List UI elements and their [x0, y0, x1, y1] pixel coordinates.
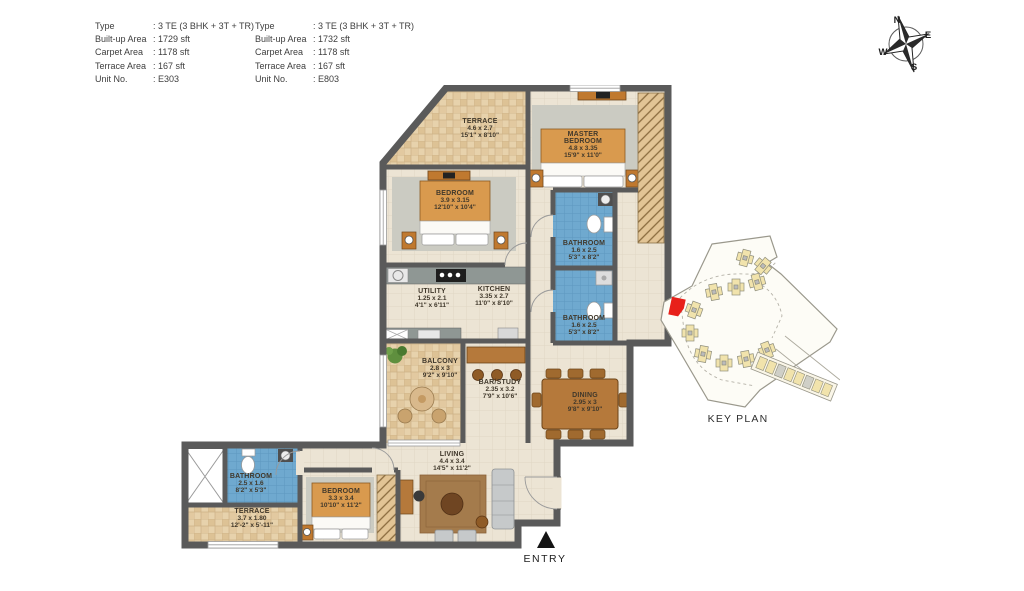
bed — [420, 181, 490, 221]
terrace-top-floor — [383, 88, 528, 165]
bedroom-upper-furniture — [392, 171, 516, 251]
compass-east-label: E — [921, 30, 935, 41]
entry-arrow-icon — [537, 531, 555, 548]
spec-row: Terrace Area: 167 sft — [255, 60, 414, 73]
unit-spec-block-1: Type: 3 TE (3 BHK + 3T + TR) Built-up Ar… — [95, 20, 254, 86]
floor-plan-drawing — [180, 85, 672, 557]
bedroom-bottom-furniture — [302, 475, 396, 541]
key-plan-title: KEY PLAN — [695, 413, 781, 425]
stair-shaft — [185, 448, 225, 505]
compass-west-label: W — [876, 47, 890, 58]
spec-row: Type: 3 TE (3 BHK + 3T + TR) — [95, 20, 254, 33]
key-plan-map — [650, 230, 840, 415]
sofa — [492, 469, 514, 529]
bed — [312, 483, 370, 517]
wardrobe — [638, 93, 664, 243]
wardrobe — [377, 475, 396, 541]
study-desk — [399, 480, 413, 514]
spec-row: Carpet Area: 1178 sft — [255, 46, 414, 59]
entry-label: ENTRY — [514, 553, 576, 565]
terrace-bottom-floor — [185, 505, 300, 545]
compass-south-label: S — [907, 62, 921, 73]
master-bed — [541, 129, 625, 163]
spec-row: Built-up Area: 1732 sft — [255, 33, 414, 46]
spec-row: Carpet Area: 1178 sft — [95, 46, 254, 59]
spec-row: Built-up Area: 1729 sft — [95, 33, 254, 46]
compass-north-label: N — [890, 15, 904, 26]
compass-icon — [876, 8, 936, 78]
spec-row: Terrace Area: 167 sft — [95, 60, 254, 73]
unit-spec-block-2: Type: 3 TE (3 BHK + 3T + TR) Built-up Ar… — [255, 20, 414, 86]
dining-table — [542, 379, 618, 429]
spec-row: Type: 3 TE (3 BHK + 3T + TR) — [255, 20, 414, 33]
dining-furniture — [532, 369, 628, 439]
floor-plan-page: { "spec_blocks": [ {"rows": [ {"label": … — [0, 0, 1024, 591]
